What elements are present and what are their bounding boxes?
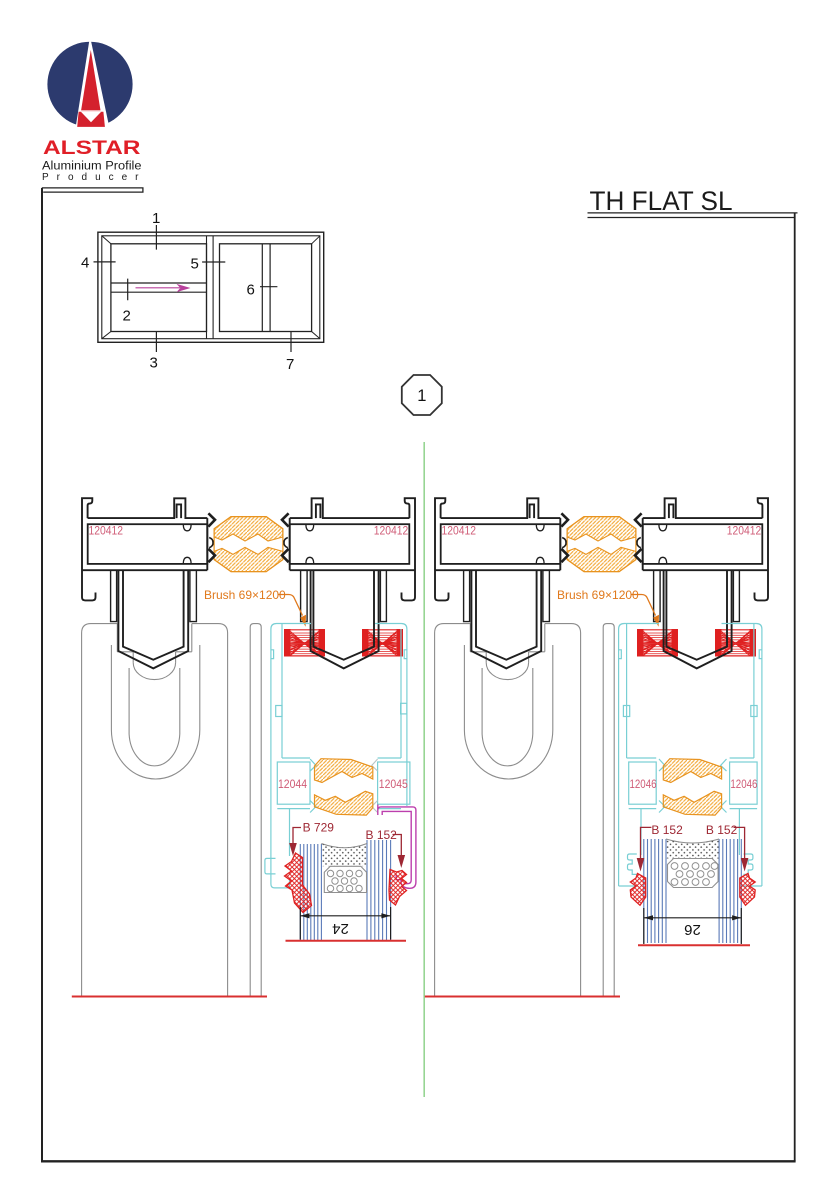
svg-text:4: 4 bbox=[81, 255, 89, 272]
svg-text:ALSTAR: ALSTAR bbox=[43, 137, 141, 159]
svg-text:Aluminium Profile: Aluminium Profile bbox=[42, 159, 142, 173]
svg-text:120412: 120412 bbox=[89, 526, 124, 538]
svg-text:26: 26 bbox=[684, 921, 701, 938]
svg-text:1: 1 bbox=[152, 210, 160, 227]
svg-text:120412: 120412 bbox=[374, 526, 409, 538]
svg-text:12046: 12046 bbox=[630, 779, 657, 791]
svg-text:B 152: B 152 bbox=[366, 828, 398, 842]
svg-text:24: 24 bbox=[332, 920, 349, 937]
svg-text:B 152: B 152 bbox=[706, 823, 738, 837]
svg-text:12044: 12044 bbox=[278, 779, 308, 791]
svg-text:TH FLAT SL: TH FLAT SL bbox=[590, 186, 733, 216]
svg-text:2: 2 bbox=[123, 308, 131, 325]
svg-text:B 729: B 729 bbox=[303, 821, 335, 835]
svg-text:B 152: B 152 bbox=[651, 823, 683, 837]
svg-text:12046: 12046 bbox=[730, 779, 757, 791]
svg-text:1: 1 bbox=[417, 387, 426, 405]
svg-text:7: 7 bbox=[286, 356, 294, 373]
svg-text:5: 5 bbox=[191, 255, 199, 272]
svg-text:Producer: Producer bbox=[42, 172, 139, 183]
svg-text:3: 3 bbox=[150, 355, 158, 372]
svg-text:12045: 12045 bbox=[379, 779, 408, 791]
svg-text:6: 6 bbox=[247, 281, 255, 298]
svg-text:Brush 69×1200: Brush 69×1200 bbox=[204, 588, 286, 602]
